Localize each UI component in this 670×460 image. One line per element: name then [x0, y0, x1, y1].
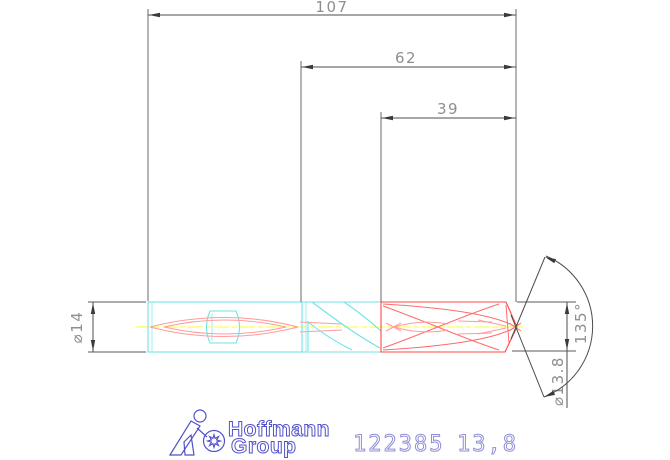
drill-technical-drawing: 107 62 39 ⌀14 ⌀13.8	[0, 0, 670, 460]
hoffmann-group-logo: Hoffmann Group	[170, 410, 330, 458]
dim-label-62: 62	[395, 49, 417, 67]
dimension-head-length: 39	[381, 100, 516, 302]
article-size: 13,8	[457, 432, 518, 457]
article-number: 122385	[353, 432, 444, 457]
dim-label-107: 107	[315, 0, 348, 16]
dim-label-phi13-8: ⌀13.8	[549, 356, 567, 406]
drill-flute-zone	[302, 302, 381, 352]
brand-name-bottom: Group	[231, 435, 297, 458]
dimension-shank-diameter: ⌀14	[68, 302, 146, 352]
dim-label-39: 39	[437, 100, 459, 118]
dimension-cut-diameter: ⌀13.8	[512, 302, 576, 408]
logo-head-circle	[194, 410, 206, 422]
hoffmann-logo-figure-icon	[170, 410, 225, 455]
dim-label-phi14: ⌀14	[68, 311, 86, 344]
dim-label-135deg: 135°	[572, 302, 590, 344]
dimension-overall-length: 107	[148, 0, 516, 302]
technical-drawing-page: 107 62 39 ⌀14 ⌀13.8	[0, 0, 670, 460]
article-stamp: 122385 13,8	[353, 432, 518, 457]
dimension-flute-length: 62	[301, 49, 516, 302]
logo-gear-star	[208, 435, 221, 448]
